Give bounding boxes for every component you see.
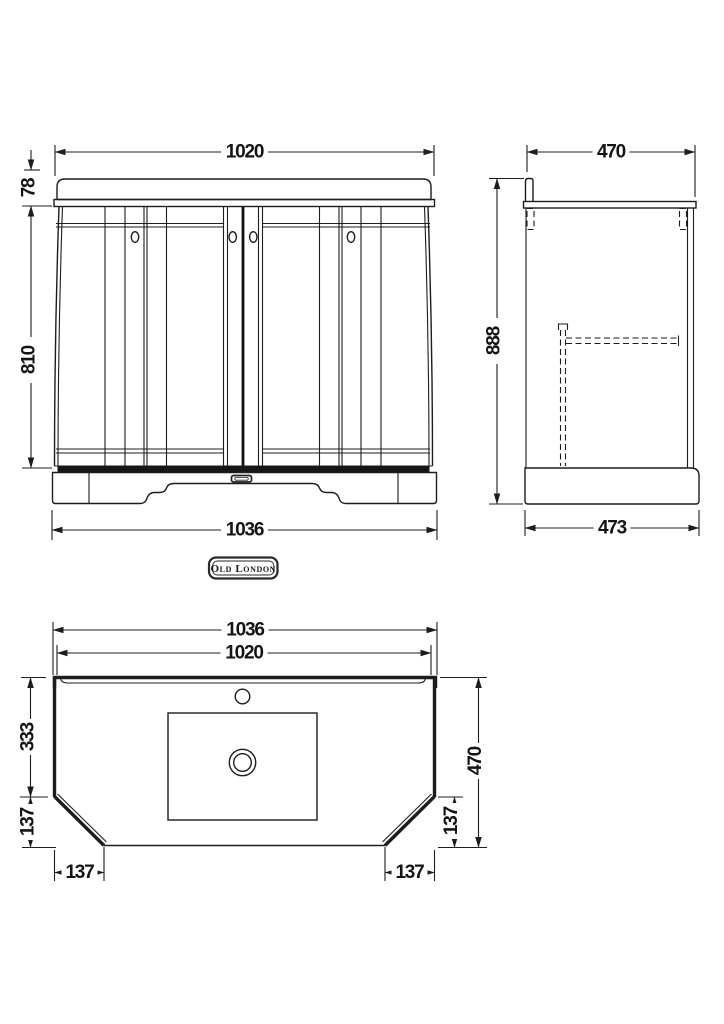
hidden-shelf-lines [566, 338, 679, 344]
dim-plan-overall-width-value: 1036 [226, 620, 264, 641]
dim-plan-chamfer-height-left: 137 [18, 797, 56, 848]
dim-plan-chamfer-width-left: 137 [55, 847, 105, 883]
dim-plan-chamfer-height-right-value: 137 [441, 806, 462, 835]
technical-drawing-page: 1020 78 810 1036 [0, 0, 724, 1024]
dim-front-worktop-height-value: 78 [19, 178, 40, 197]
vanity-dimension-drawing: 1020 78 810 1036 [0, 0, 724, 1024]
door-knob [229, 232, 236, 243]
dim-side-base-depth-value: 473 [598, 518, 627, 539]
dim-front-cabinet-height: 810 [19, 206, 52, 468]
dim-plan-chamfer-width-left-value: 137 [65, 862, 94, 883]
side-worktop [524, 179, 697, 209]
side-cabinet [526, 208, 694, 468]
dim-front-top-width-value: 1020 [226, 142, 264, 163]
door-knob [250, 232, 257, 243]
door-knob [347, 232, 354, 243]
dim-front-top-width: 1020 [55, 142, 434, 176]
front-cabinet [55, 207, 433, 467]
dim-plan-chamfer-width-right-value: 137 [395, 862, 424, 883]
dim-front-cabinet-height-value: 810 [19, 345, 40, 374]
waste-hole-inner [234, 754, 252, 772]
dim-front-base-width-value: 1036 [226, 520, 264, 541]
door-knob [131, 232, 138, 243]
plan-basin [168, 689, 317, 820]
fixing-bracket [527, 209, 534, 230]
dim-plan-chamfer-width-right: 137 [385, 847, 435, 883]
dim-side-base-depth: 473 [525, 510, 699, 539]
dim-plan-chamfer-height-right: 137 [438, 797, 463, 848]
plinth-shadow-band [58, 466, 430, 473]
dim-plan-back-depth: 333 [18, 678, 48, 798]
dim-side-overall-height-value: 888 [484, 326, 505, 355]
side-plinth [525, 468, 699, 504]
front-plinth [53, 466, 437, 504]
fixing-bracket [680, 209, 687, 230]
side-view: 470 888 473 [484, 142, 699, 539]
brand-badge-label: Old London [211, 563, 277, 575]
dim-plan-overall-depth-value: 470 [465, 746, 486, 775]
dim-plan-inner-width-value: 1020 [225, 643, 263, 664]
dim-side-overall-height: 888 [484, 179, 524, 505]
front-worktop [54, 179, 435, 207]
plan-view: 1036 1020 333 137 [18, 620, 487, 884]
hidden-frame-lines [561, 330, 566, 466]
dim-side-top-depth-value: 470 [597, 142, 626, 163]
dim-front-base-width: 1036 [52, 510, 437, 541]
tap-hole [235, 689, 250, 704]
dim-front-worktop-height: 78 [19, 150, 40, 202]
dim-plan-back-depth-value: 333 [18, 722, 39, 751]
brand-badge: Old London [209, 558, 278, 579]
dim-side-top-depth: 470 [527, 142, 695, 197]
plinth-logo-plate [232, 476, 252, 483]
dim-plan-inner-width: 1020 [57, 643, 431, 675]
front-view: 1020 78 810 1036 [19, 142, 437, 541]
dim-plan-chamfer-height-left-value: 137 [18, 807, 39, 836]
